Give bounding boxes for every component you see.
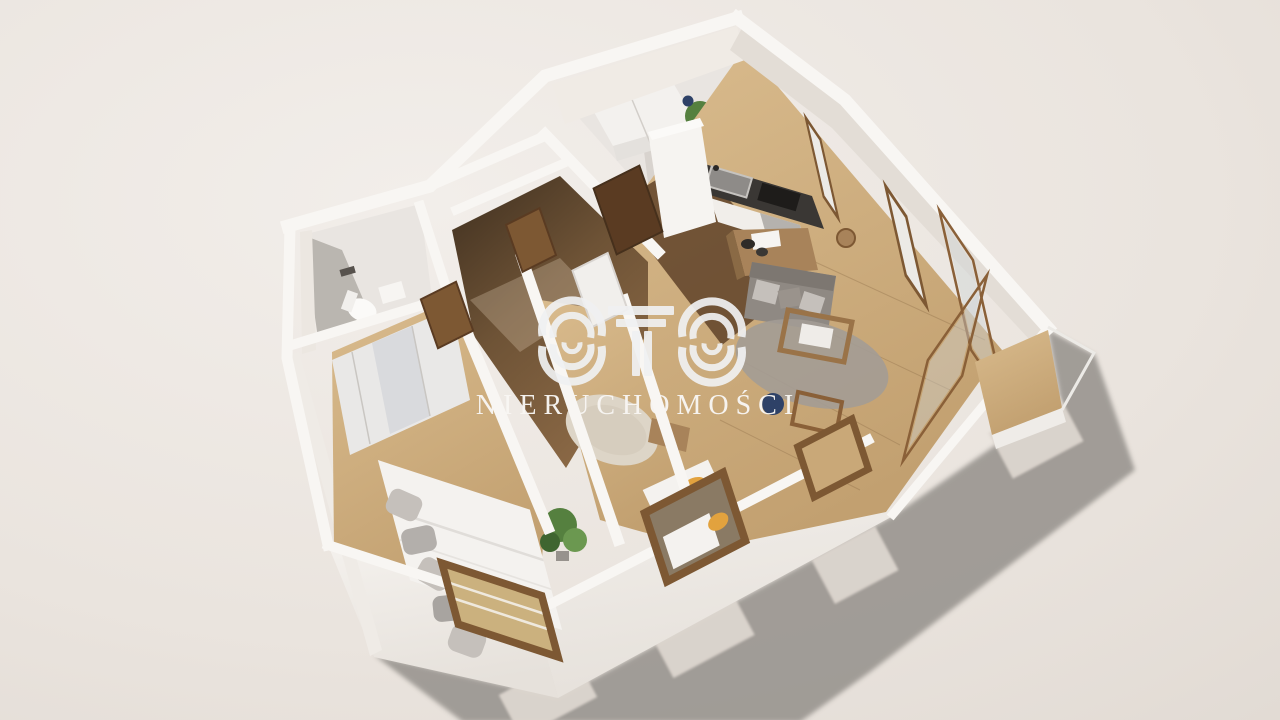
blue-vase [683,96,694,107]
watermark-text: NIERUCHOMOŚCI [476,390,800,421]
floorplan-render: NIERUCHOMOŚCI [0,0,1280,720]
sofa-pillow [778,287,803,309]
faucet [713,165,719,171]
bar-stool [837,229,855,247]
render-canvas: NIERUCHOMOŚCI [0,0,1280,720]
bowl [741,239,755,249]
bowl [756,248,768,257]
